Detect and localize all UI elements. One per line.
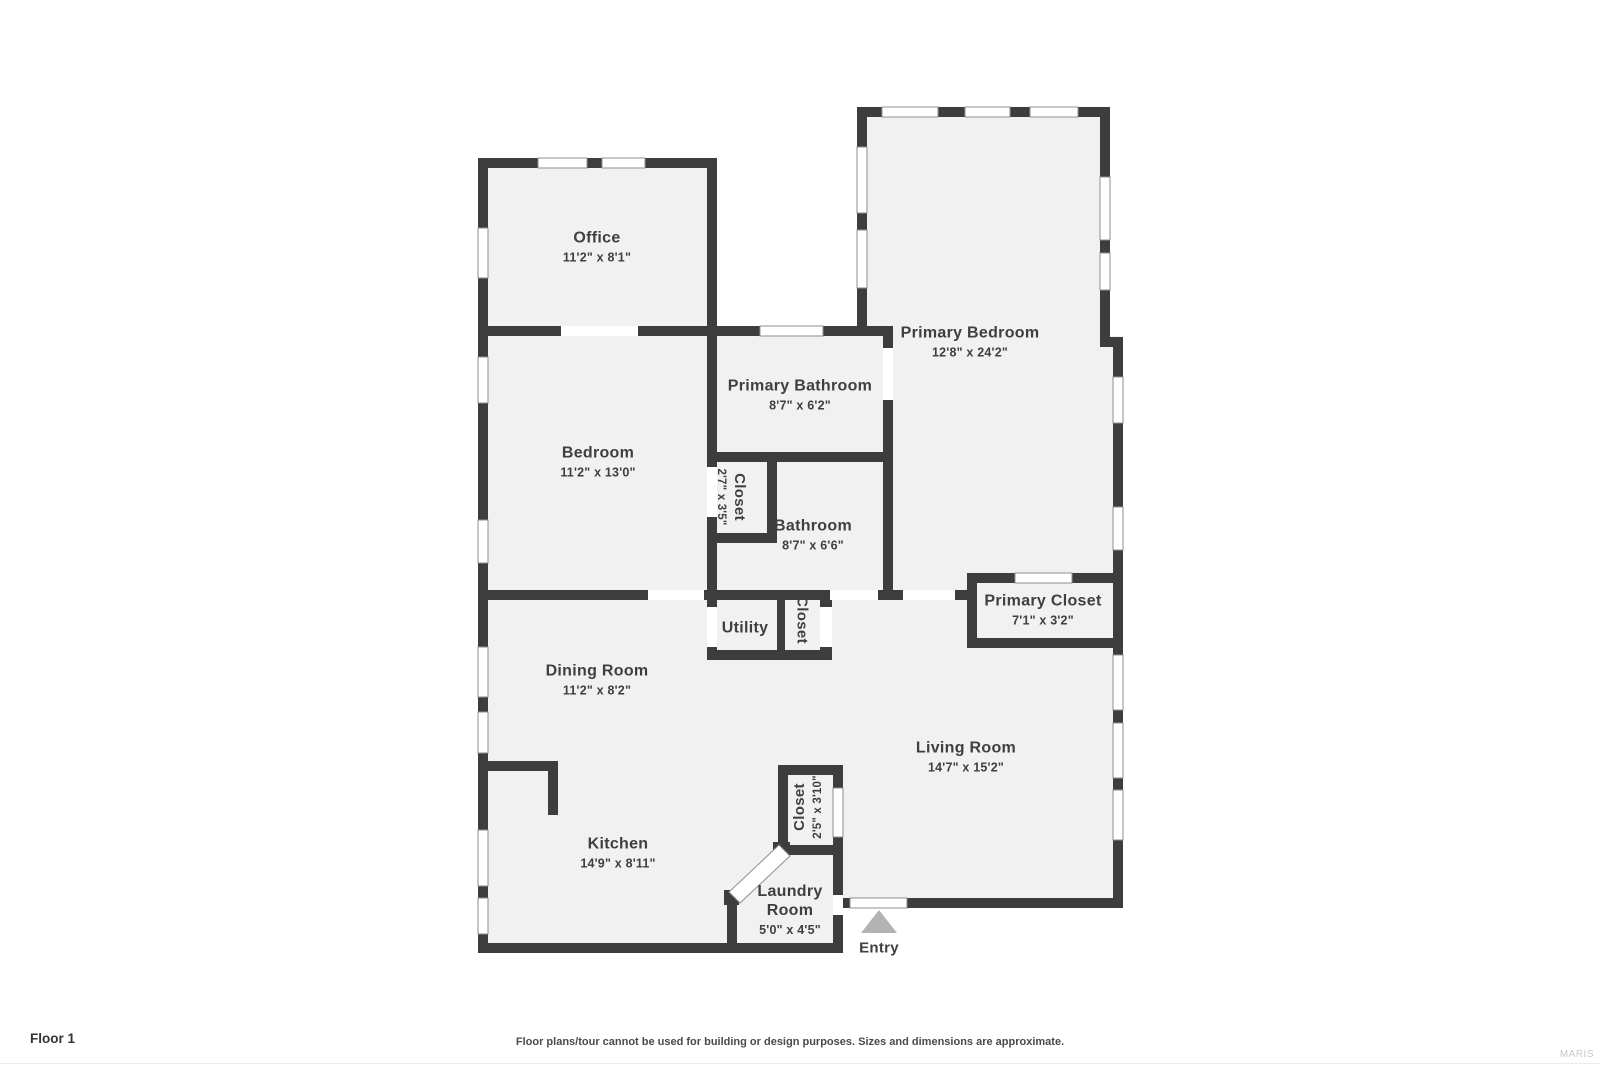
room-name: Utility bbox=[722, 619, 769, 638]
room-label-utility: Utility bbox=[722, 619, 769, 638]
room-dims: 8'7" x 6'2" bbox=[769, 398, 831, 414]
room-label-kitchen: Kitchen 14'9" x 8'11" bbox=[580, 835, 655, 872]
room-label-closet: Closet 2'7" x 3'5" bbox=[713, 469, 749, 526]
entry-triangle-icon bbox=[861, 910, 897, 933]
room-label-bathroom: Bathroom 8'7" x 6'6" bbox=[774, 517, 852, 554]
maris-watermark: MARIS bbox=[1560, 1049, 1594, 1060]
room-label-dining-room: Dining Room 11'2" x 8'2" bbox=[546, 662, 649, 699]
room-dims: 14'7" x 15'2" bbox=[928, 760, 1004, 776]
room-name: Living Room bbox=[916, 739, 1016, 758]
room-name: Dining Room bbox=[546, 662, 649, 681]
floor-plan-page: Office 11'2" x 8'1" Primary Bedroom 12'8… bbox=[0, 0, 1600, 1066]
disclaimer-text: Floor plans/tour cannot be used for buil… bbox=[516, 1036, 1064, 1048]
room-name: Closet bbox=[730, 473, 749, 521]
entry-label: Entry bbox=[859, 940, 899, 957]
room-label-primary-bedroom: Primary Bedroom 12'8" x 24'2" bbox=[901, 324, 1040, 361]
room-dims: 11'2" x 13'0" bbox=[560, 465, 635, 481]
room-label-laundry-room: Laundry Room 5'0" x 4'5" bbox=[754, 882, 826, 938]
room-dims: 2'7" x 3'5" bbox=[713, 469, 729, 526]
room-label-bedroom: Bedroom 11'2" x 13'0" bbox=[560, 444, 635, 481]
room-name: Primary Closet bbox=[984, 592, 1101, 611]
room-label-laundry-closet: Closet 2'5" x 3'10" bbox=[790, 775, 826, 839]
room-name: Primary Bathroom bbox=[728, 377, 872, 396]
room-name: Kitchen bbox=[588, 835, 649, 854]
room-label-hall-closet: Closet bbox=[793, 596, 812, 644]
room-name: Closet bbox=[793, 596, 812, 644]
room-label-primary-bathroom: Primary Bathroom 8'7" x 6'2" bbox=[728, 377, 872, 414]
room-name: Closet bbox=[790, 783, 809, 831]
room-name: Laundry Room bbox=[754, 882, 826, 920]
room-dims: 2'5" x 3'10" bbox=[810, 775, 826, 839]
room-label-primary-closet: Primary Closet 7'1" x 3'2" bbox=[984, 592, 1101, 629]
room-name: Primary Bedroom bbox=[901, 324, 1040, 343]
room-label-office: Office 11'2" x 8'1" bbox=[563, 229, 631, 266]
room-dims: 14'9" x 8'11" bbox=[580, 856, 655, 872]
room-label-living-room: Living Room 14'7" x 15'2" bbox=[916, 739, 1016, 776]
room-dims: 5'0" x 4'5" bbox=[759, 922, 821, 938]
room-dims: 11'2" x 8'2" bbox=[563, 683, 631, 699]
room-name: Bathroom bbox=[774, 517, 852, 536]
room-name: Office bbox=[573, 229, 620, 248]
room-dims: 11'2" x 8'1" bbox=[563, 250, 631, 266]
floor-label: Floor 1 bbox=[30, 1031, 75, 1046]
room-dims: 7'1" x 3'2" bbox=[1012, 613, 1074, 629]
room-name: Bedroom bbox=[562, 444, 634, 463]
room-dims: 8'7" x 6'6" bbox=[782, 538, 844, 554]
room-dims: 12'8" x 24'2" bbox=[932, 345, 1008, 361]
footer-divider bbox=[0, 1063, 1600, 1064]
